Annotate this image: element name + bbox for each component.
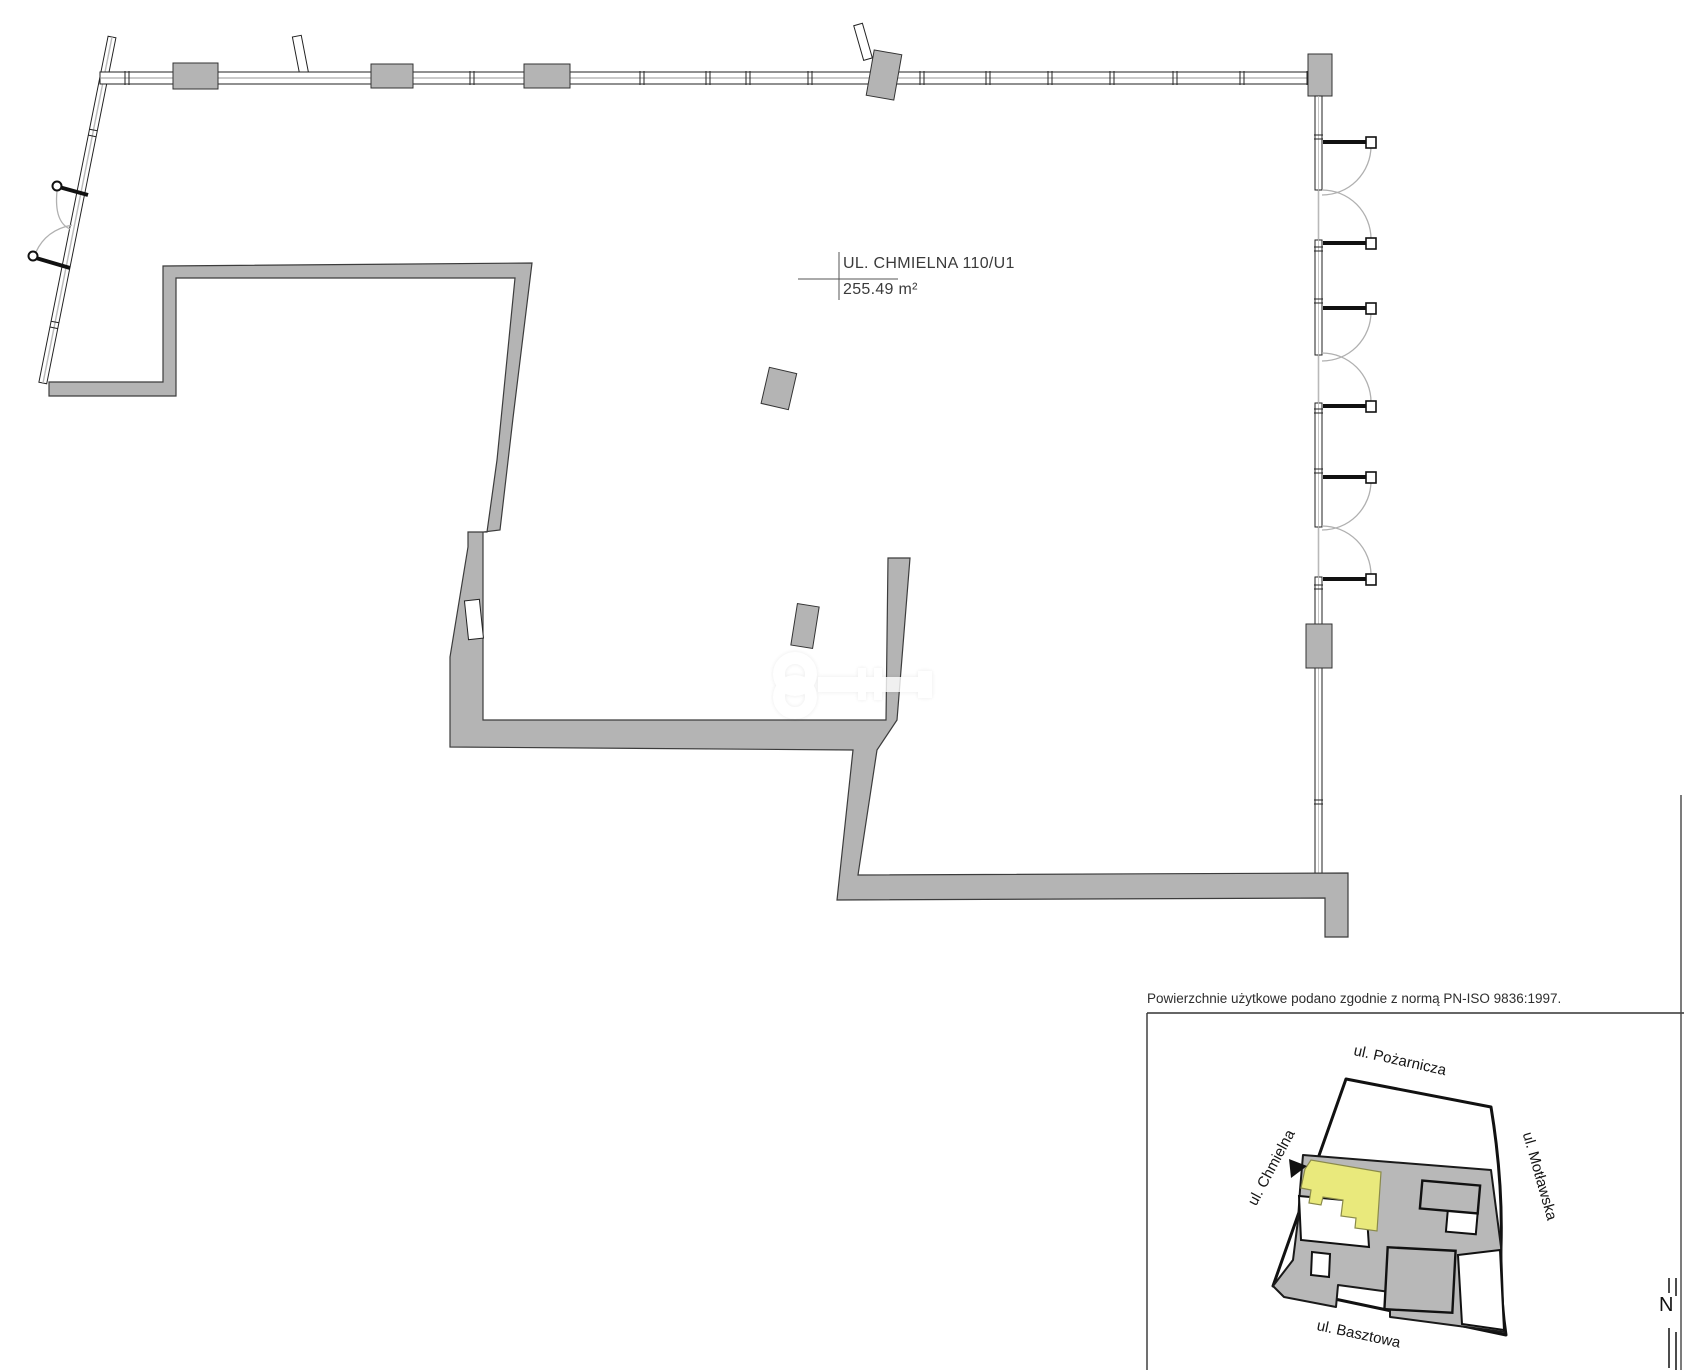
map-notch-bottom-left	[1311, 1252, 1330, 1277]
floor-plan-canvas	[0, 0, 1684, 1370]
right-wall-pier	[1306, 624, 1332, 668]
north-arrow-icon	[1669, 1278, 1676, 1370]
key-watermark-icon	[779, 658, 932, 713]
left-exterior-wall	[39, 36, 116, 384]
right-exterior-wall	[1306, 96, 1332, 873]
door-swing-arcs	[1322, 146, 1371, 575]
unit-label: UL. CHMIELNA 110/U1	[843, 255, 1015, 273]
sub-building-bottom	[1384, 1247, 1455, 1312]
norm-note: Powierzchnie użytkowe podano zgodnie z n…	[1147, 991, 1561, 1006]
door-hinges	[1366, 137, 1376, 585]
sub-building-right	[1420, 1181, 1480, 1214]
left-doors	[29, 182, 89, 269]
floor-plan-page: UL. CHMIELNA 110/U1 255.49 m² Powierzchn…	[0, 0, 1684, 1370]
columns	[761, 367, 819, 648]
map-gap-bottom-right	[1458, 1250, 1504, 1330]
north-label: N	[1659, 1294, 1673, 1317]
top-exterior-wall	[100, 50, 1332, 100]
interior-thick-walls	[49, 263, 1348, 937]
unit-area: 255.49 m²	[843, 281, 918, 299]
right-doors	[1322, 137, 1376, 585]
